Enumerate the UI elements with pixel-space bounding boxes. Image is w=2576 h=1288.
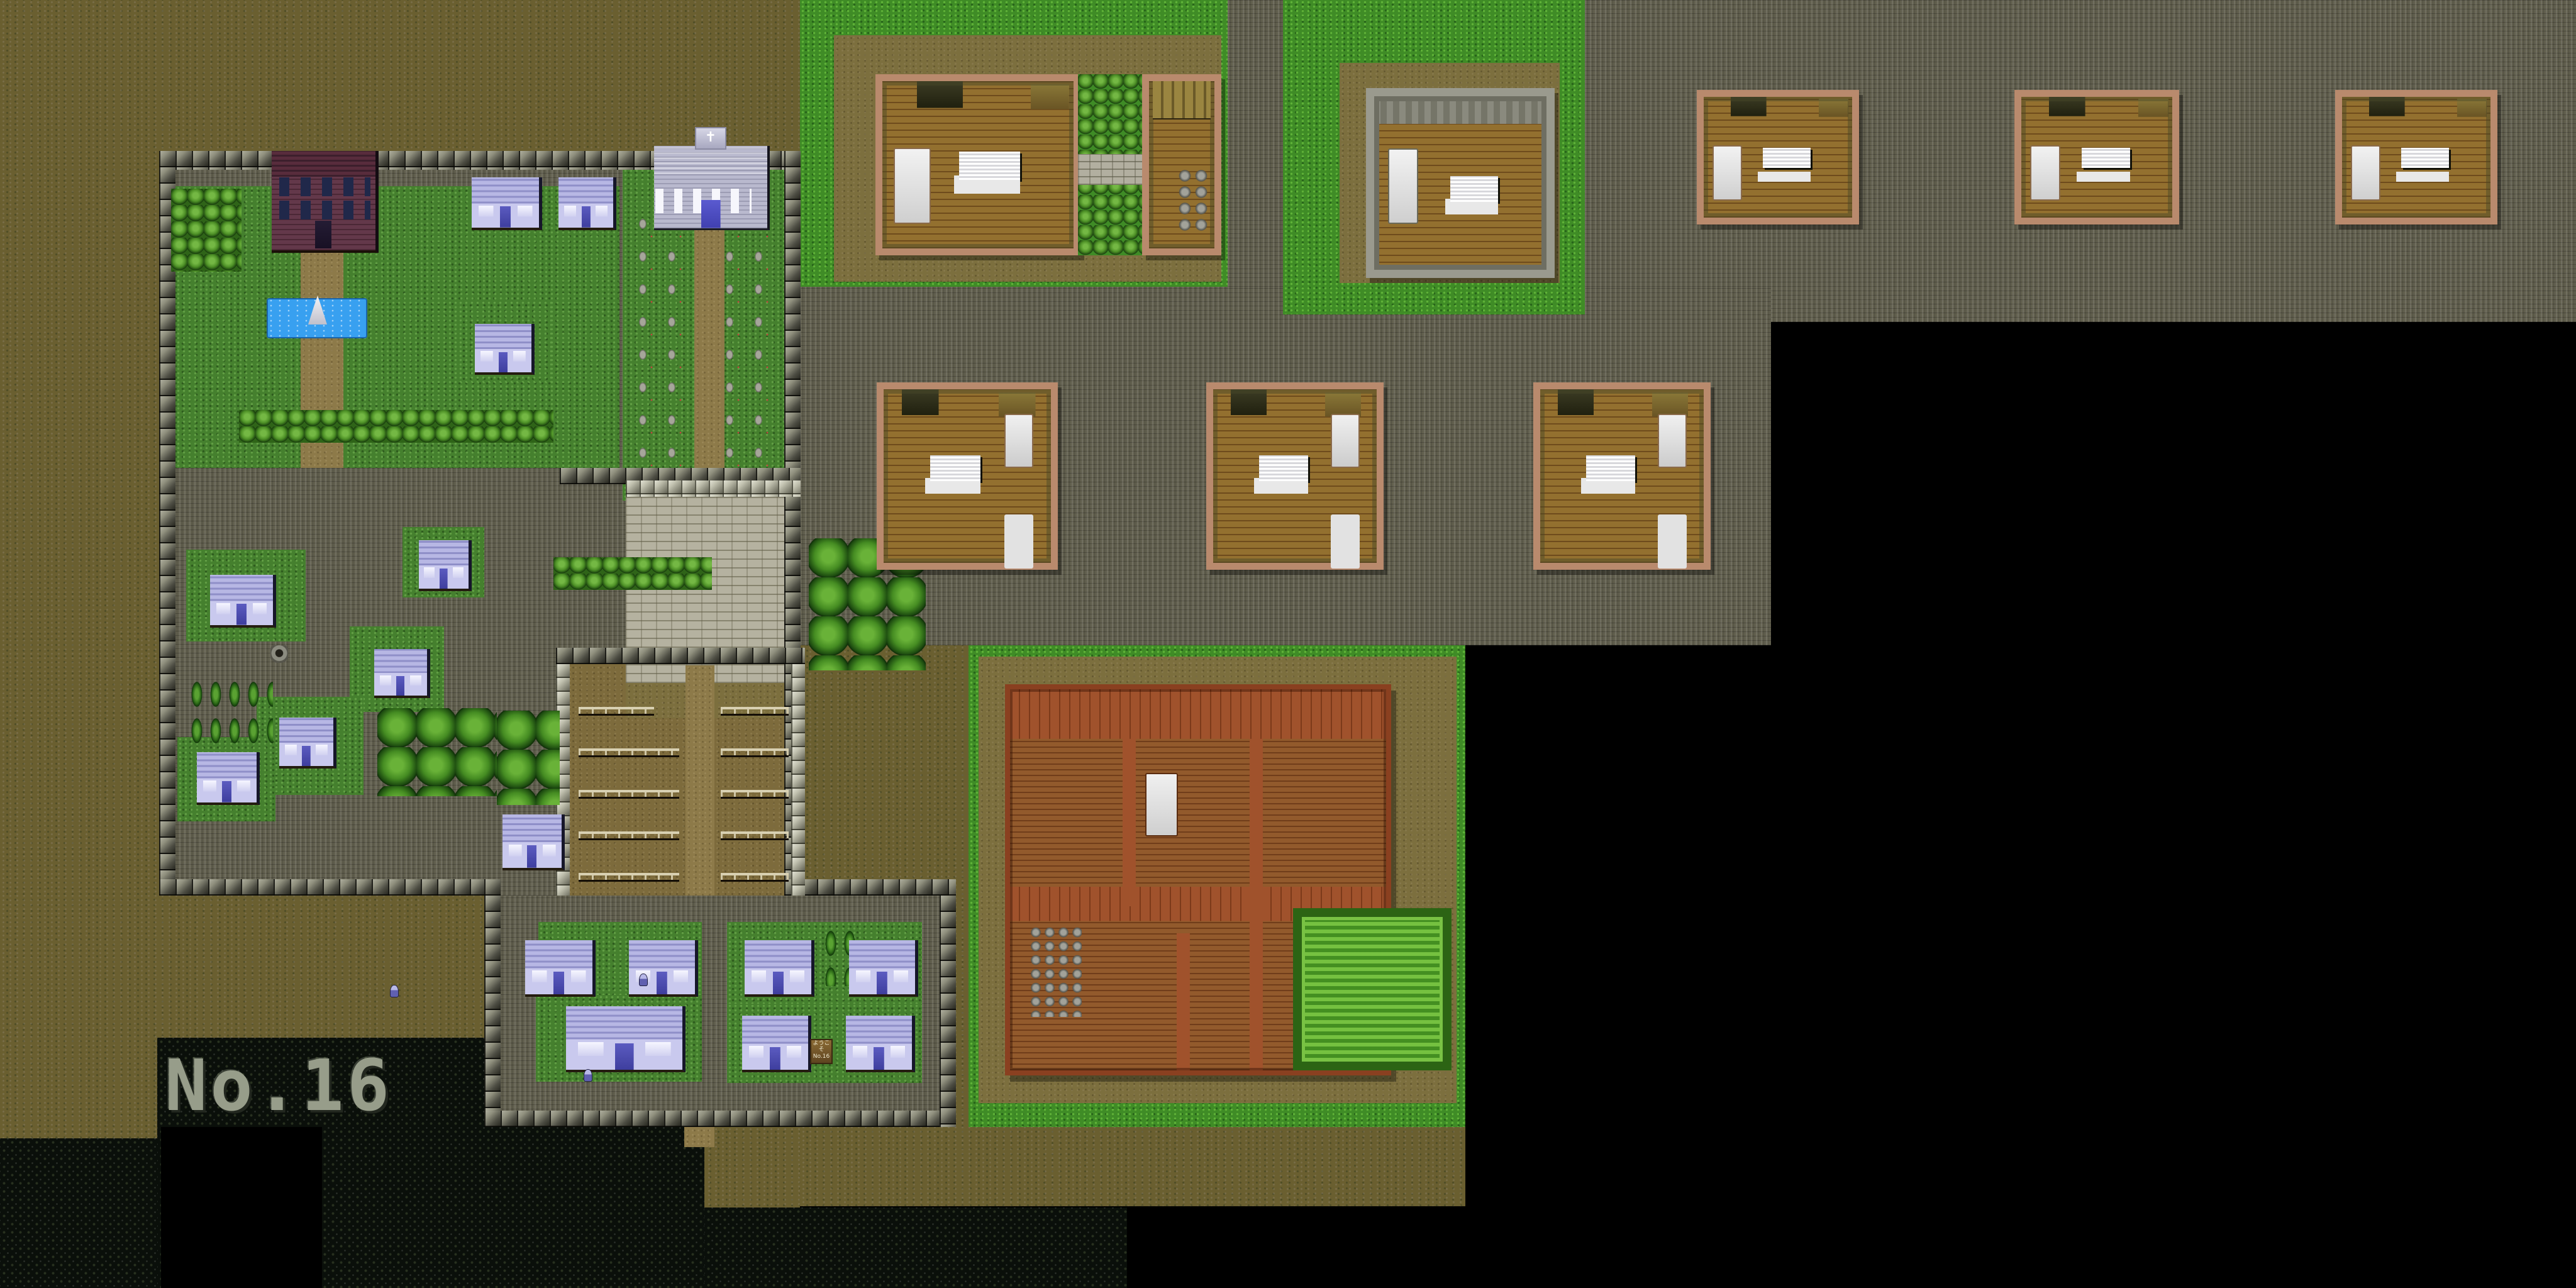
fence-row [579,831,679,840]
town-map-canvas: ようこそ No.16No.16 [0,0,2576,1288]
tree-cluster-field-west [497,711,560,805]
fence-row [721,707,789,716]
bunk-interior-3[interactable] [1533,382,1711,570]
district-wall-north [784,879,956,896]
hedge-garden-west [171,189,241,272]
field-wall-east [791,664,805,896]
house-12[interactable] [745,940,814,997]
house-13[interactable] [849,940,918,997]
house-3[interactable] [475,324,535,375]
house-5[interactable] [210,575,276,628]
villager-2[interactable] [584,1069,592,1082]
void-bottom-left [161,1127,322,1288]
district-wall-south [484,1111,956,1127]
town-wall-south-left [159,879,501,896]
interior-2-stone-room[interactable] [1366,88,1555,278]
district-wall-east [940,879,956,1127]
villager-3[interactable] [390,985,399,997]
fence-row [579,790,679,799]
interior-1-courtyard [1078,74,1142,255]
conifer-row-west [187,674,273,747]
path-field [686,665,714,896]
bunk-interior-2[interactable] [1206,382,1384,570]
map-number-label: No.16 [165,1039,410,1133]
plaza-wall-north [626,480,801,497]
inn-garden [1293,908,1452,1070]
fence-row [579,873,679,882]
well-garden[interactable] [270,645,288,663]
cottage-interior-2[interactable] [2014,90,2179,225]
forest-bottom-band [704,1207,1127,1288]
house-15[interactable] [742,1016,811,1072]
field-wall-north [556,648,805,664]
graveyard-path [694,211,724,486]
house-2[interactable] [558,177,616,230]
fence-row [721,873,789,882]
bunk-interior-1[interactable] [877,382,1058,570]
villager-1[interactable] [639,974,648,986]
hedge-plaza [553,557,712,590]
house-1[interactable] [472,177,542,230]
house-9[interactable] [502,814,565,870]
tree-cluster-center [377,708,497,796]
fence-row [579,707,654,716]
house-11[interactable] [629,940,698,997]
cottage-interior-1[interactable] [1697,90,1859,225]
house-7[interactable] [279,718,336,769]
church[interactable] [654,146,770,230]
house-8[interactable] [197,752,260,805]
district-wall-west [484,879,501,1127]
house-4[interactable] [419,540,472,591]
fence-row [721,831,789,840]
mansion[interactable] [272,151,379,253]
welcome-sign[interactable]: ようこそ No.16 [810,1039,833,1064]
fence-row [721,790,789,799]
forest-bottom-left [0,1138,157,1288]
hedge-above-pond [239,410,553,443]
interior-1-room-east[interactable] [1142,74,1221,255]
house-16[interactable] [846,1016,915,1072]
house-6[interactable] [374,649,430,698]
house-10[interactable] [525,940,596,997]
cottage-interior-3[interactable] [2335,90,2497,225]
fence-row [721,748,789,757]
house-14-large[interactable] [566,1006,686,1072]
interior-1-room-west[interactable] [875,74,1080,255]
fence-row [579,748,679,757]
